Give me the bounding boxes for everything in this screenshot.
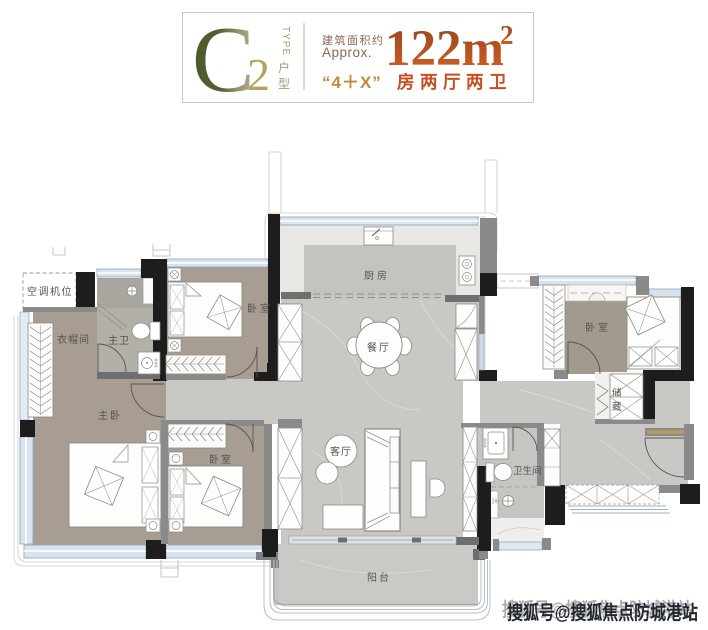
svg-text:“4＋X”: “4＋X” bbox=[322, 73, 382, 92]
svg-text:122m: 122m bbox=[385, 21, 504, 77]
svg-text:厨房: 厨房 bbox=[364, 269, 390, 282]
svg-text:TYPE: TYPE bbox=[280, 26, 291, 56]
svg-text:主卧: 主卧 bbox=[98, 409, 122, 422]
svg-text:C: C bbox=[192, 8, 255, 112]
svg-text:餐厅: 餐厅 bbox=[367, 341, 391, 354]
svg-text:主卫: 主卫 bbox=[108, 335, 130, 347]
svg-text:客厅: 客厅 bbox=[330, 445, 352, 458]
svg-text:卧室: 卧室 bbox=[247, 302, 273, 315]
svg-text:房两厅两卫: 房两厅两卫 bbox=[397, 72, 512, 92]
svg-text:空调机位: 空调机位 bbox=[27, 285, 73, 298]
svg-text:储: 储 bbox=[612, 387, 622, 399]
svg-text:户: 户 bbox=[278, 60, 290, 75]
svg-text:2: 2 bbox=[247, 49, 270, 100]
svg-text:卧室: 卧室 bbox=[585, 321, 611, 334]
svg-text:藏: 藏 bbox=[612, 401, 622, 413]
svg-text:搜狐号@搜狐焦点防城港站: 搜狐号@搜狐焦点防城港站 bbox=[507, 602, 698, 624]
svg-text:卧室: 卧室 bbox=[209, 453, 233, 466]
svg-text:衣帽间: 衣帽间 bbox=[57, 333, 90, 346]
svg-text:卫生间: 卫生间 bbox=[513, 465, 542, 477]
svg-text:阳台: 阳台 bbox=[367, 571, 391, 584]
svg-text:型: 型 bbox=[278, 77, 290, 91]
svg-text:Approx.: Approx. bbox=[322, 45, 372, 60]
svg-text:2: 2 bbox=[500, 20, 514, 50]
